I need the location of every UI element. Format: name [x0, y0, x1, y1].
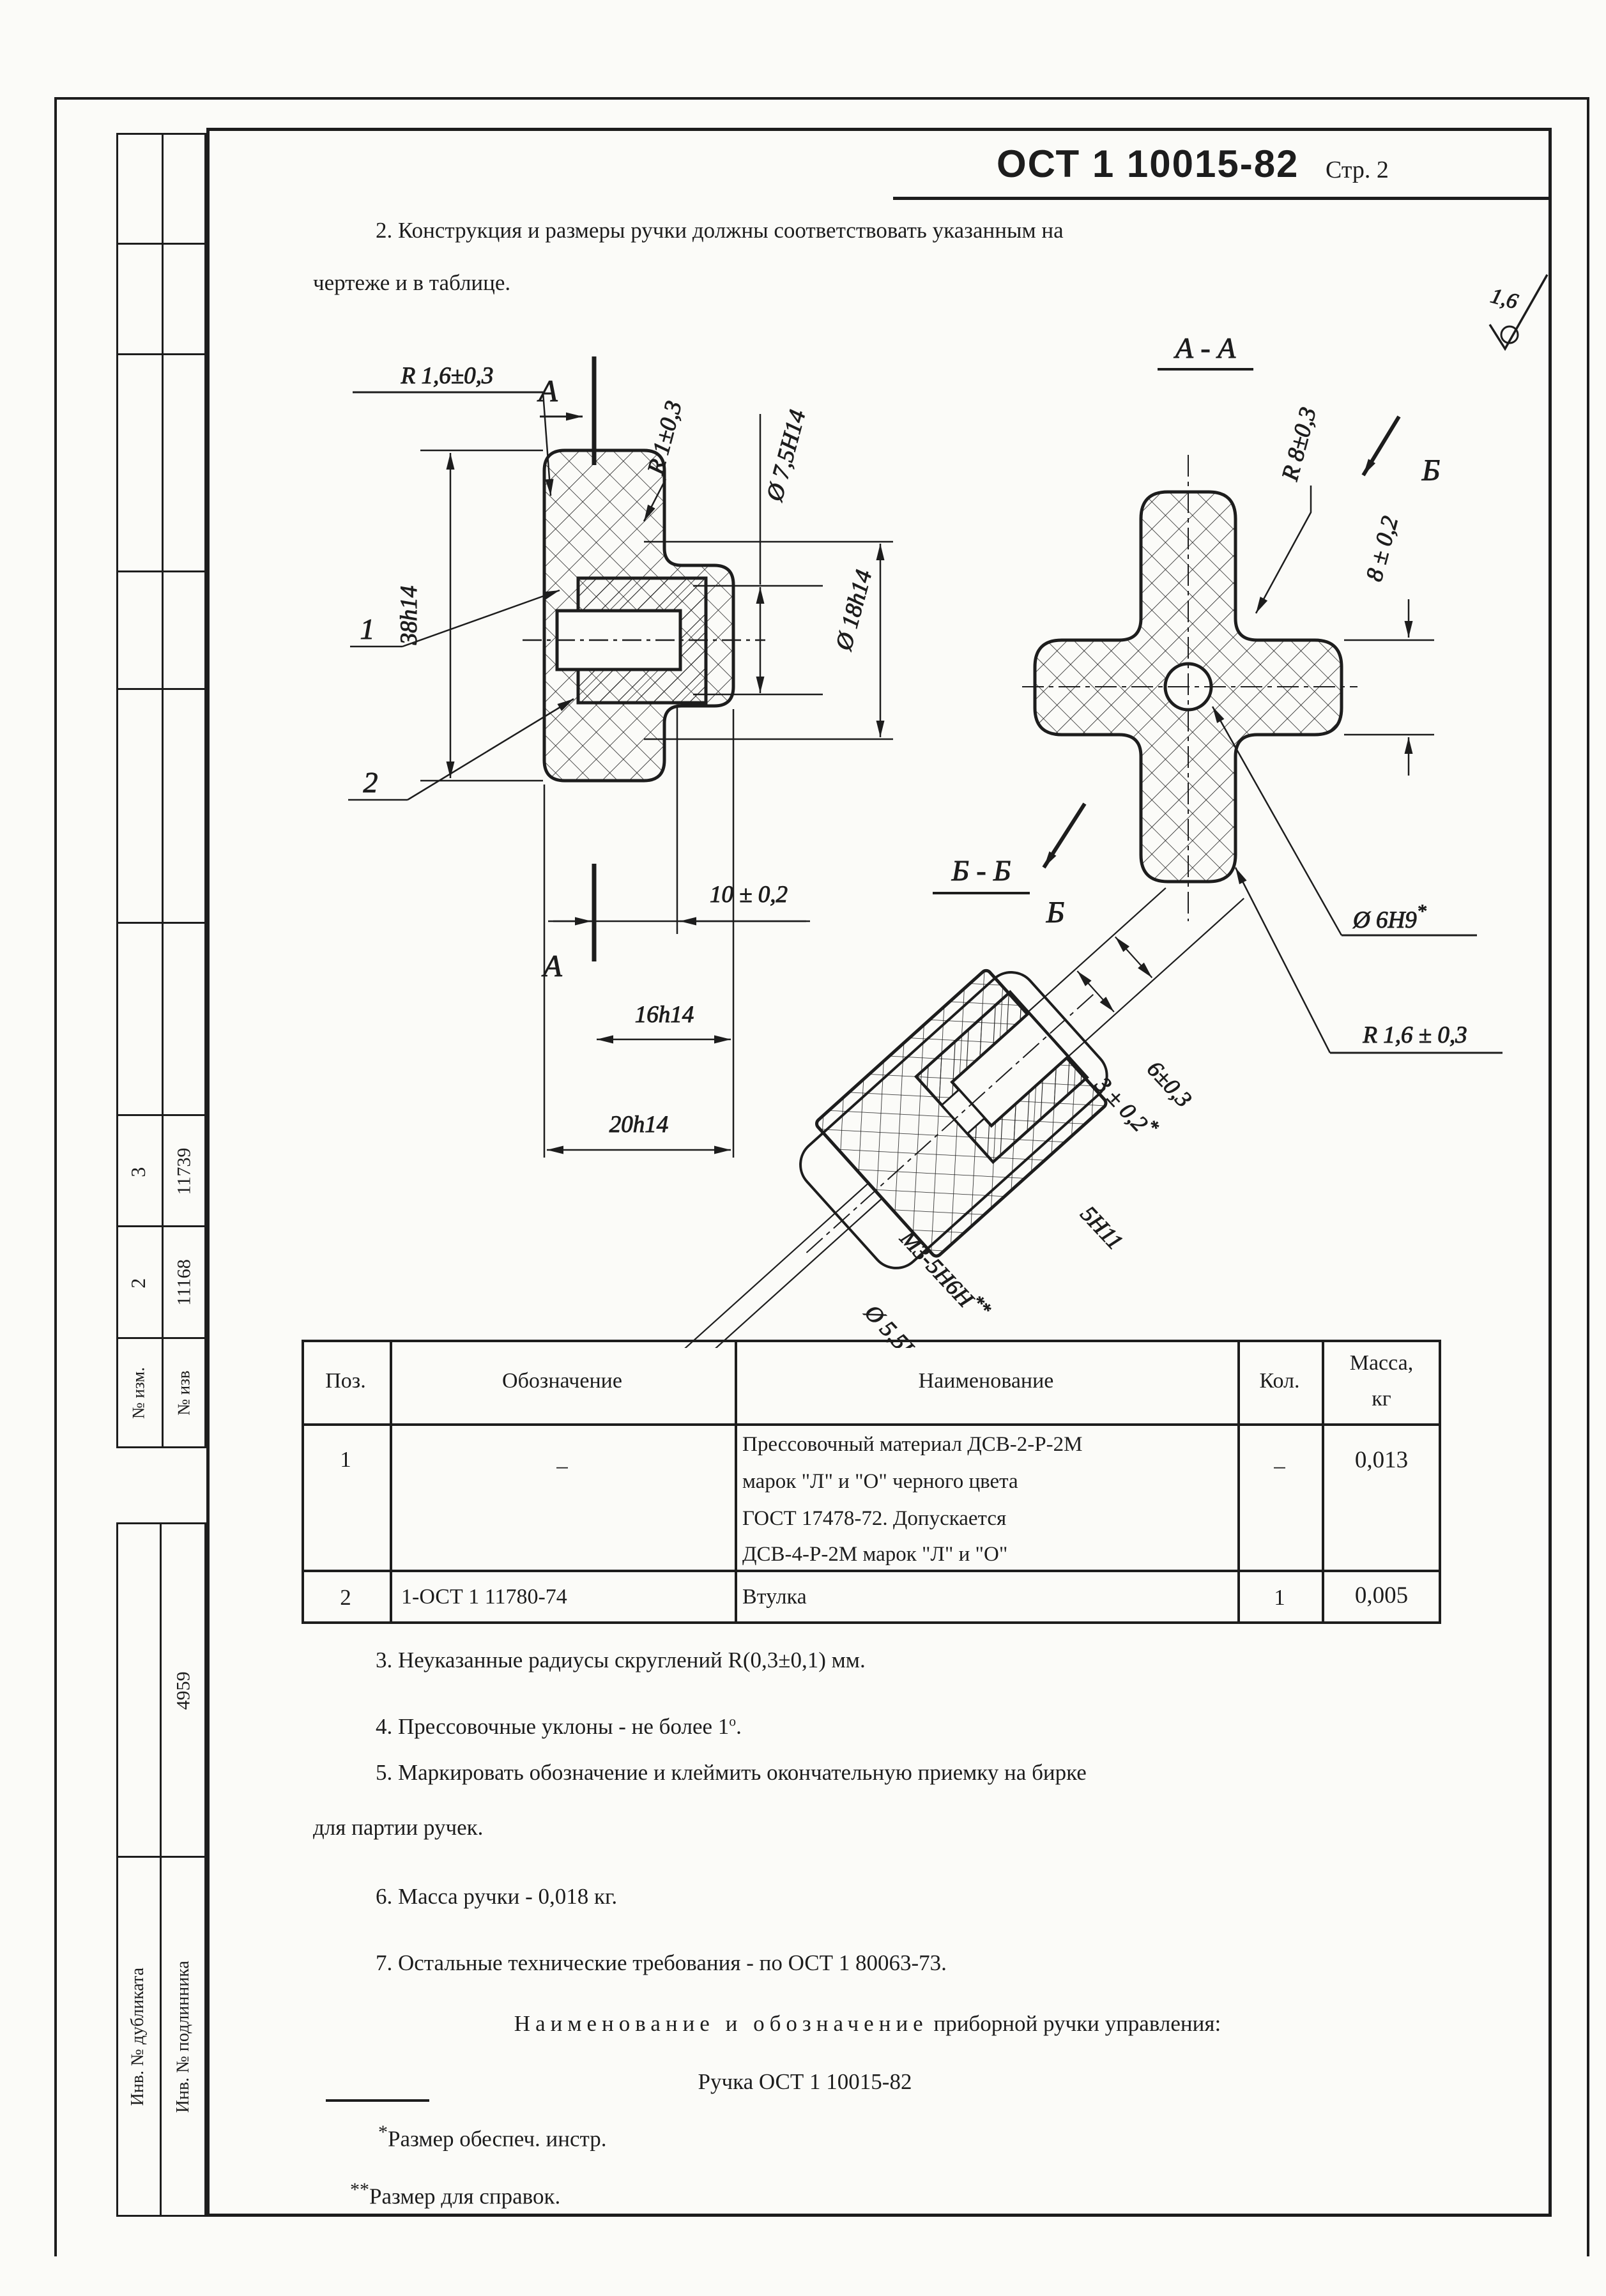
table-r1-name-line-4: ДСВ-4-Р-2М марок "Л" и "О": [742, 1541, 1007, 1568]
dim8-label: 8 ± 0,2: [1361, 514, 1403, 585]
bb-dim-a: [1077, 971, 1114, 1012]
dia18-label: Ø 18h14: [830, 567, 877, 654]
sidebar-lower-hline: [116, 1856, 206, 1858]
note-5-line-2: для партии ручек.: [313, 1813, 483, 1842]
r16b-label: R 1,6 ± 0,3: [1362, 1022, 1467, 1048]
r1-label: R 1±0,3: [643, 398, 687, 478]
sidebar-hline-3: [116, 570, 206, 572]
footnote-1-mark: *: [378, 2122, 388, 2143]
bb-ext-2: [1069, 898, 1244, 1055]
table-header-mass-2: кг: [1322, 1385, 1441, 1413]
footnote-1: *Размер обеспеч. инстр.: [378, 2120, 607, 2154]
table-r2-mass: 0,005: [1322, 1580, 1441, 1611]
sidebar-upper-divider: [162, 133, 164, 1448]
table-r2-designation: 1-ОСТ 1 11780-74: [401, 1583, 567, 1611]
table-r1-mass: 0,013: [1322, 1445, 1441, 1476]
table-header-pos: Поз.: [302, 1367, 390, 1395]
note-4-degree: о: [729, 1713, 736, 1729]
table-r1-pos: 1: [302, 1445, 390, 1474]
table-r1-designation: –: [390, 1451, 735, 1481]
r16b-leader: [1235, 868, 1330, 1053]
table-header-qty: Кол.: [1237, 1367, 1322, 1395]
h38-label: 38h14: [396, 586, 422, 646]
table-r1-name-line-1: Прессовочный материал ДСВ-2-Р-2М: [742, 1431, 1082, 1458]
section-bb-title: Б - Б: [951, 854, 1011, 887]
table-r1-name-line-3: ГОСТ 17478-72. Допускается: [742, 1505, 1006, 1533]
pos2-label: 2: [363, 766, 378, 799]
sidebar-hline-5: [116, 922, 206, 924]
footnote-2-mark: **: [350, 2179, 369, 2200]
note-7: 7. Остальные технические требования - по…: [376, 1948, 947, 1978]
bb-screw-line-2: [667, 1183, 869, 1348]
note-3: 3. Неуказанные радиусы скруглений R(0,3±…: [376, 1646, 866, 1675]
table-r1-qty: –: [1237, 1451, 1322, 1481]
sidebar-hline-6: [116, 1114, 206, 1116]
h20-label: 20h14: [609, 1112, 669, 1138]
section-aa-title: А - А: [1174, 332, 1236, 364]
section-b-letter-top: Б: [1421, 454, 1440, 487]
sidebar-inv-original-label: Инв. № подлинника: [172, 1871, 195, 2203]
section-a-letter-top: А: [537, 374, 558, 408]
note-4-text: 4. Прессовочные уклоны - не более 1: [376, 1714, 729, 1739]
technical-drawing: R 1,6±0,3 А R 1±0,3 Ø 7,5H14 Ø 18h14 38h…: [206, 249, 1554, 1348]
naming-intro-spaced: Наименование и обозначение: [514, 2011, 928, 2036]
sidebar-izv-row2: 11168: [172, 1228, 197, 1337]
table-row-line-2: [302, 1570, 1441, 1572]
outer-border-top: [54, 97, 1589, 100]
bb-dim6-label: 6±0,3: [1142, 1056, 1197, 1112]
naming-designation: Ручка ОСТ 1 10015-82: [294, 2067, 1316, 2097]
section-b-arrow-top: [1363, 417, 1399, 475]
section-b-arrow-bottom: [1044, 804, 1085, 868]
footnote-divider: [326, 2099, 429, 2102]
note-4-period: .: [736, 1714, 742, 1739]
sidebar-izv-row3: 11739: [172, 1117, 197, 1226]
section-aa-view: А - А R 8±0,3 Б 8 ± 0,2 Ø 6Н9* R 1,6 ± 0…: [1022, 332, 1503, 1053]
sidebar-izm-row3: 3: [125, 1118, 152, 1227]
table-r1-name-line-2: марок "Л" и "О" черного цвета: [742, 1468, 1018, 1496]
sidebar-lower-divider: [160, 1522, 162, 2217]
page-title: ОСТ 1 10015-82: [997, 139, 1299, 189]
table-r2-qty: 1: [1237, 1583, 1322, 1612]
scanned-standard-page: ОСТ 1 10015-82 Стр. 2 2. Конструкция и р…: [0, 0, 1606, 2296]
section-b-letter-bottom: Б: [1046, 896, 1064, 930]
dia75-label: Ø 7,5H14: [761, 407, 811, 505]
sidebar-izv-label: № изв: [172, 1339, 195, 1448]
footnote-2: **Размер для справок.: [350, 2177, 560, 2211]
table-r2-name: Втулка: [742, 1583, 807, 1611]
r8-leader: [1256, 486, 1311, 613]
paragraph-2-line-1: 2. Конструкция и размеры ручки должны со…: [376, 216, 1064, 245]
note-4: 4. Прессовочные уклоны - не более 1о.: [376, 1712, 742, 1741]
roughness-value: 1,6: [1488, 284, 1520, 314]
h16-label: 16h14: [635, 1002, 694, 1028]
naming-intro-rest: приборной ручки управления:: [928, 2011, 1221, 2036]
bb-dim-b: [1115, 937, 1152, 977]
dim10-label: 10 ± 0,2: [710, 882, 788, 908]
front-view: R 1,6±0,3 А R 1±0,3 Ø 7,5H14 Ø 18h14 38h…: [348, 356, 893, 1158]
table-header-mass-1: Масса,: [1322, 1349, 1441, 1377]
sidebar-doc-number: 4959: [171, 1563, 196, 1819]
note-6: 6. Масса ручки - 0,018 кг.: [376, 1882, 617, 1911]
bb-dim5-label: 5Н11: [1076, 1201, 1128, 1255]
sidebar-izm-label: № изм.: [127, 1339, 149, 1448]
r16-label: R 1,6±0,3: [401, 363, 494, 389]
page-number: Стр. 2: [1326, 155, 1389, 186]
table-header-name: Наименование: [735, 1367, 1237, 1395]
sidebar-hline-1: [116, 243, 206, 245]
outer-border-right: [1587, 97, 1589, 2256]
note-5-line-1: 5. Маркировать обозначение и клеймить ок…: [376, 1758, 1087, 1787]
footnote-1-text: Размер обеспеч. инстр.: [388, 2127, 607, 2152]
table-r2-pos: 2: [302, 1583, 390, 1612]
r8-label: R 8±0,3: [1277, 404, 1322, 484]
pos1-label: 1: [360, 613, 375, 645]
dia6-label: Ø 6Н9*: [1352, 901, 1426, 933]
sidebar-hline-2: [116, 353, 206, 355]
section-a-letter-bottom: А: [541, 949, 562, 983]
naming-intro: Наименование и обозначение приборной руч…: [294, 2009, 1441, 2039]
table-header-designation: Обозначение: [390, 1367, 735, 1395]
sidebar-inv-duplicate-label: Инв. № дубликата: [126, 1871, 149, 2203]
outer-border-left: [54, 97, 57, 2256]
pos1-leader: [402, 590, 560, 647]
surface-finish-mark: 1,6: [1488, 275, 1547, 349]
table-row-line-1: [302, 1423, 1441, 1426]
sidebar-izm-row2: 2: [125, 1229, 152, 1338]
sidebar-hline-4: [116, 688, 206, 690]
footnote-2-text: Размер для справок.: [369, 2184, 560, 2209]
header-underline: [893, 197, 1550, 200]
